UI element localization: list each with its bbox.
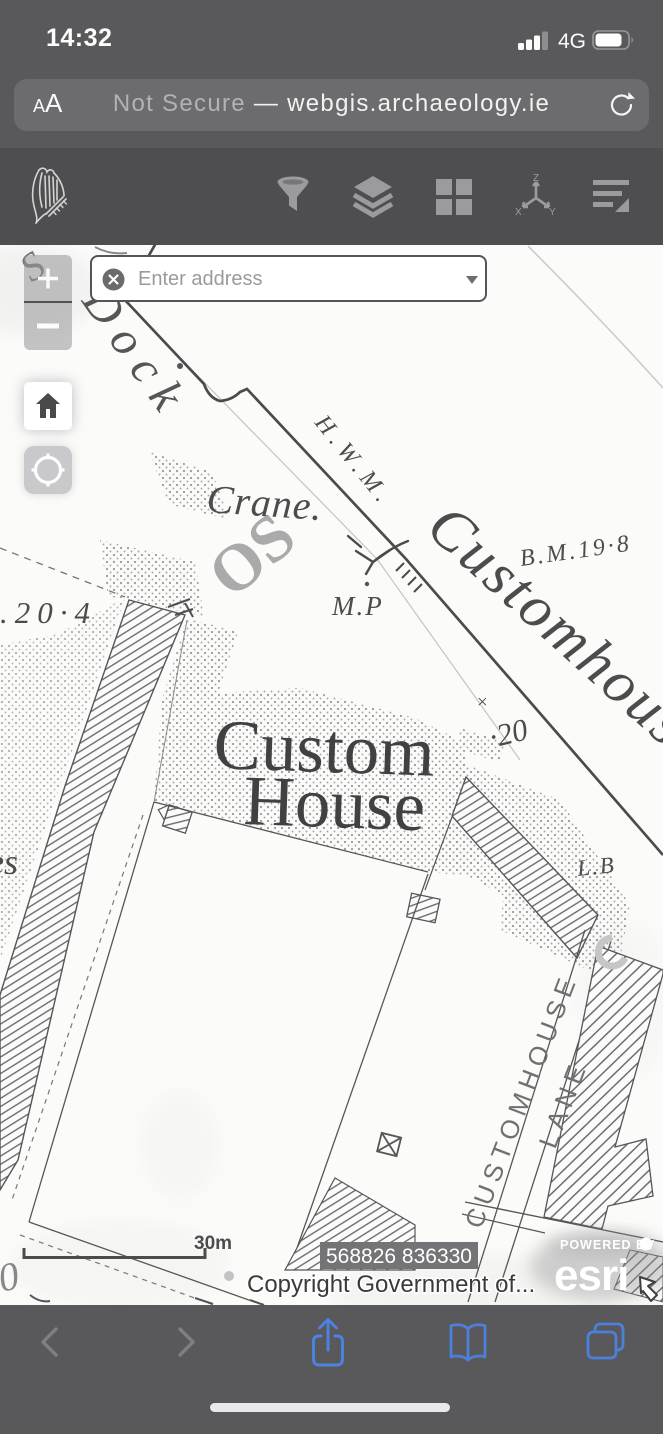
svg-text:L.B: L.B bbox=[575, 852, 617, 881]
svg-text:30m: 30m bbox=[194, 1233, 232, 1254]
svg-text:Y: Y bbox=[549, 207, 556, 218]
svg-text:568826 836330: 568826 836330 bbox=[326, 1245, 472, 1268]
svg-text:es: es bbox=[0, 842, 18, 882]
svg-text:×: × bbox=[477, 692, 488, 713]
svg-text:esri: esri bbox=[554, 1251, 628, 1300]
svg-text:.20·4: .20·4 bbox=[0, 595, 97, 630]
svg-text:M.P: M.P bbox=[331, 591, 384, 621]
svg-text:X: X bbox=[515, 207, 522, 218]
svg-text:Copyright Government of...: Copyright Government of... bbox=[247, 1271, 535, 1298]
svg-text:Z: Z bbox=[533, 174, 539, 184]
svg-text:House: House bbox=[242, 762, 426, 846]
